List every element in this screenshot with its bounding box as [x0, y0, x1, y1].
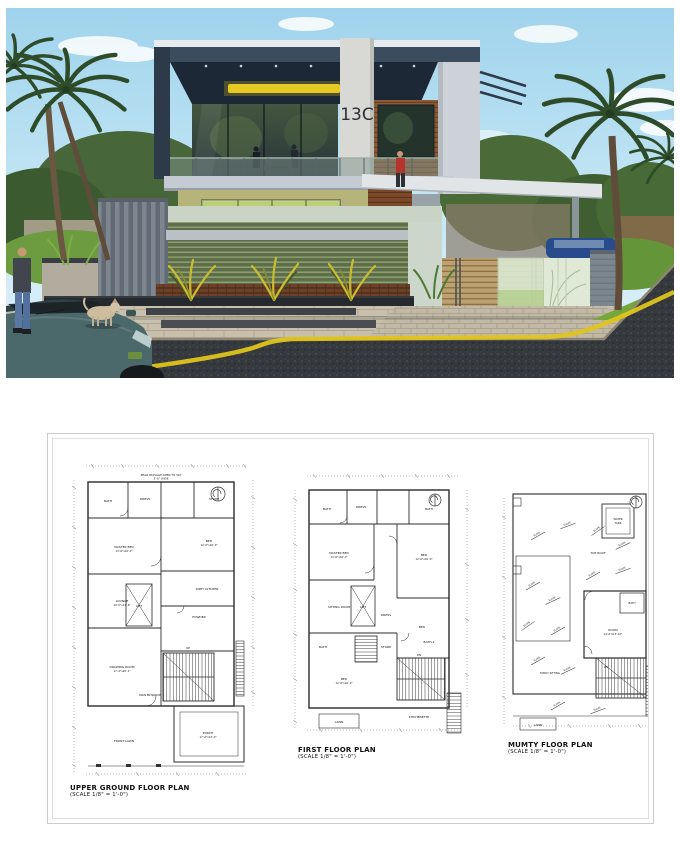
- svg-text:14'-6"x13'-10": 14'-6"x13'-10": [604, 632, 623, 636]
- svg-text:BED: BED: [419, 625, 426, 629]
- plans-sheet: REAR PASSAGE OPEN TO SKY 3'-0" WIDE: [47, 433, 654, 824]
- plan-note: 3'-0" WIDE: [153, 477, 168, 481]
- floor-plan-mumty: SLOPE SLOPE SLOPE SLOPE SLOPE SLOPE SLOP…: [498, 476, 649, 738]
- svg-text:13'-6"x16'-0": 13'-6"x16'-0": [330, 555, 347, 559]
- exterior-render: 13C: [6, 8, 674, 378]
- interior-walls: [309, 490, 449, 658]
- svg-text:LAWN: LAWN: [335, 720, 344, 724]
- svg-text:LIFT: LIFT: [136, 604, 142, 608]
- plan-title-upper-ground: UPPER GROUND FLOOR PLAN (SCALE 1/8" = 1'…: [70, 784, 190, 799]
- svg-text:13'-6"x16'-0": 13'-6"x16'-0": [115, 549, 132, 553]
- svg-text:BATH: BATH: [425, 507, 433, 511]
- svg-text:WATER: WATER: [613, 517, 622, 521]
- svg-text:MAIN ENTRANCE: MAIN ENTRANCE: [139, 693, 161, 697]
- step-strip: [146, 308, 356, 315]
- exterior-render-svg: 13C: [6, 8, 674, 378]
- svg-text:SITTING ROOM: SITTING ROOM: [328, 605, 351, 609]
- svg-text:LAWN: LAWN: [534, 723, 543, 727]
- svg-text:KITCHENETTE: KITCHENETTE: [409, 715, 430, 719]
- house-number: 13C: [340, 105, 374, 125]
- plan-scale: (SCALE 1/8" = 1'-0"): [508, 749, 593, 756]
- svg-text:DN: DN: [604, 665, 608, 669]
- page: 13C: [0, 0, 680, 850]
- svg-text:TOP ROOF: TOP ROOF: [589, 551, 606, 555]
- floor-plan-upper-ground: REAR PASSAGE OPEN TO SKY 3'-0" WIDE: [66, 456, 261, 786]
- soffit-light-strip: [228, 84, 340, 93]
- small-stair: [355, 636, 377, 662]
- svg-text:DRESS: DRESS: [381, 613, 391, 617]
- plan-title-mumty: MUMTY FLOOR PLAN (SCALE 1/8" = 1'-0"): [508, 741, 593, 756]
- svg-text:BATH: BATH: [319, 645, 327, 649]
- roof-side-fin: [154, 47, 170, 179]
- car-mirror: [126, 310, 136, 316]
- svg-text:DN: DN: [417, 653, 421, 657]
- floor-plan-first: BATH DRESS BATH MASTER BED 13'-6"x16'-0"…: [289, 468, 474, 743]
- svg-text:DRESS: DRESS: [356, 505, 366, 509]
- svg-text:MASTER BED: MASTER BED: [114, 545, 134, 549]
- lower-roof-area: [516, 556, 570, 641]
- svg-text:STORE: STORE: [381, 645, 391, 649]
- plan-title: UPPER GROUND FLOOR PLAN: [70, 784, 190, 792]
- door-swings: [340, 516, 409, 641]
- svg-text:BATH: BATH: [104, 499, 112, 503]
- svg-text:BATH: BATH: [629, 601, 636, 605]
- svg-text:12'-0"x16'-0": 12'-0"x16'-0": [415, 557, 432, 561]
- plans-sheet-inner: REAR PASSAGE OPEN TO SKY 3'-0" WIDE: [52, 438, 649, 819]
- svg-text:DRAWING ROOM: DRAWING ROOM: [110, 665, 135, 669]
- plan-scale: (SCALE 1/8" = 1'-0"): [298, 754, 376, 761]
- tank-box: [602, 504, 634, 538]
- svg-text:BATH-2: BATH-2: [424, 640, 435, 644]
- plan-title: MUMTY FLOOR PLAN: [508, 741, 593, 749]
- plan-title-first: FIRST FLOOR PLAN (SCALE 1/8" = 1'-0"): [298, 746, 376, 761]
- svg-text:DRESS: DRESS: [140, 497, 150, 501]
- svg-text:BED: BED: [206, 539, 213, 543]
- svg-text:12'-0"x16'-0": 12'-0"x16'-0": [200, 543, 217, 547]
- svg-text:UP: UP: [186, 646, 190, 650]
- plan-scale: (SCALE 1/8" = 1'-0"): [70, 792, 190, 799]
- mumty-room: [584, 591, 646, 658]
- svg-text:17'-2"x20'-1": 17'-2"x20'-1": [113, 669, 130, 673]
- svg-text:BED: BED: [421, 553, 428, 557]
- svg-text:FAMILY SITTING: FAMILY SITTING: [540, 671, 560, 675]
- plan-title: FIRST FLOOR PLAN: [298, 746, 376, 754]
- svg-text:BED: BED: [341, 677, 348, 681]
- cross-beam: [166, 230, 442, 240]
- step-strip: [161, 320, 376, 328]
- svg-text:FRONT LAWN: FRONT LAWN: [114, 739, 134, 743]
- dimension-lines: [72, 464, 255, 776]
- svg-text:DIRTY KITCHEN: DIRTY KITCHEN: [196, 587, 219, 591]
- svg-text:ROOM: ROOM: [608, 628, 618, 632]
- svg-text:PORCH: PORCH: [203, 731, 213, 735]
- svg-text:BATH: BATH: [323, 507, 331, 511]
- svg-text:LIFT: LIFT: [360, 605, 366, 609]
- svg-text:POWDER: POWDER: [192, 615, 205, 619]
- svg-text:STORE: STORE: [209, 497, 219, 501]
- svg-text:LOUNGE: LOUNGE: [116, 599, 129, 603]
- door-swings: [584, 591, 594, 654]
- roof-top-band: [154, 40, 480, 47]
- svg-text:12'-0"x16'-0": 12'-0"x16'-0": [335, 681, 352, 685]
- svg-text:TANK: TANK: [615, 521, 622, 525]
- boundary-gate-marks: [96, 764, 161, 767]
- svg-text:20'-0"x17'-6": 20'-0"x17'-6": [113, 603, 130, 607]
- pedestrian: [13, 248, 31, 335]
- terrace-grill: [447, 693, 461, 733]
- svg-text:MASTER BED: MASTER BED: [329, 551, 349, 555]
- svg-text:17'-0"x13'-0": 17'-0"x13'-0": [199, 735, 216, 739]
- roof-fascia: [154, 47, 480, 62]
- right-tower-wall: [438, 62, 480, 194]
